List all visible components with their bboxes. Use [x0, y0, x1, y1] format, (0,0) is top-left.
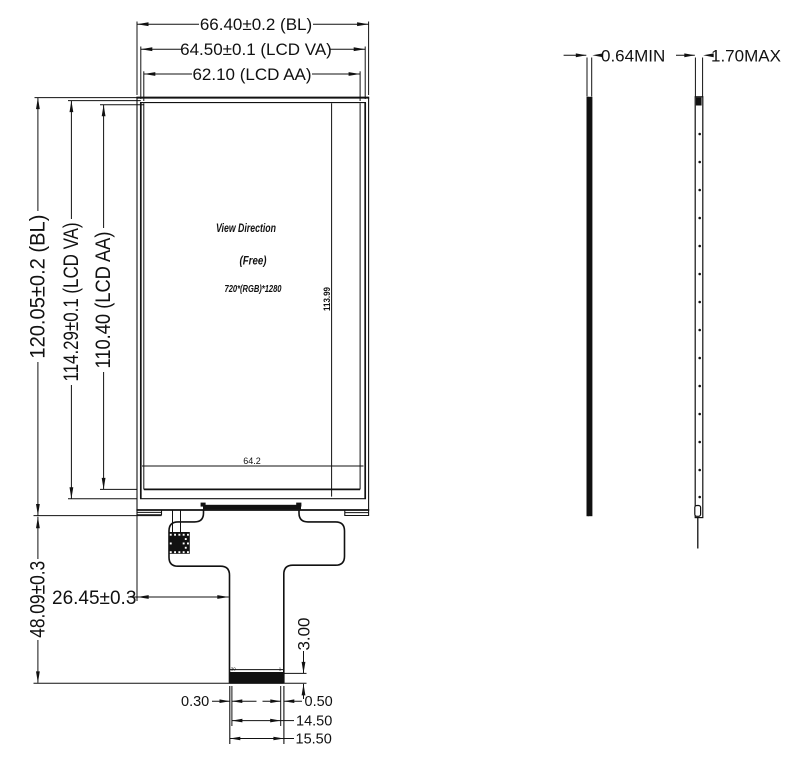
- svg-text:14.50: 14.50: [296, 714, 332, 730]
- svg-text:720*(RGB)*1280: 720*(RGB)*1280: [225, 284, 282, 295]
- svg-text:48.09±0.3: 48.09±0.3: [26, 561, 49, 638]
- svg-text:62.10 (LCD AA): 62.10 (LCD AA): [192, 65, 311, 84]
- svg-text:66.40±0.2 (BL): 66.40±0.2 (BL): [200, 15, 312, 34]
- svg-text:64.2: 64.2: [243, 456, 261, 466]
- svg-text:1.70MAX: 1.70MAX: [711, 46, 781, 65]
- svg-text:110.40 (LCD AA): 110.40 (LCD AA): [92, 232, 115, 369]
- svg-text:(Free): (Free): [240, 256, 267, 268]
- svg-text:0.50: 0.50: [305, 694, 333, 710]
- svg-text:26.45±0.3: 26.45±0.3: [52, 588, 136, 609]
- svg-text:30: 30: [231, 666, 237, 671]
- svg-text:0.30: 0.30: [181, 694, 209, 710]
- svg-text:0.64MIN: 0.64MIN: [601, 46, 665, 65]
- svg-text:15.50: 15.50: [296, 732, 332, 748]
- svg-text:114.29±0.1 (LCD VA): 114.29±0.1 (LCD VA): [60, 223, 83, 382]
- svg-text:120.05±0.2 (BL): 120.05±0.2 (BL): [26, 215, 49, 359]
- svg-text:View Direction: View Direction: [216, 223, 276, 235]
- svg-text:113.99: 113.99: [322, 287, 333, 311]
- svg-text:1: 1: [279, 666, 282, 671]
- svg-text:3.00: 3.00: [296, 618, 314, 651]
- svg-text:64.50±0.1 (LCD VA): 64.50±0.1 (LCD VA): [180, 40, 332, 59]
